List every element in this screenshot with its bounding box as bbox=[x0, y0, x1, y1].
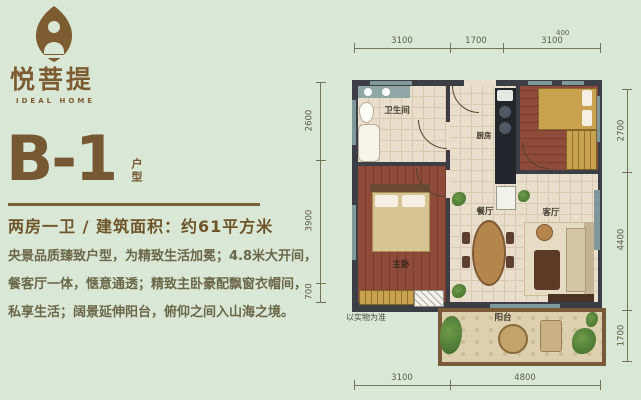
dim-tick bbox=[316, 82, 326, 83]
pillow-icon bbox=[582, 90, 592, 106]
balcony-label: 阳台 bbox=[486, 311, 520, 323]
living-window-right bbox=[594, 190, 600, 250]
unit-type-code: B-1 bbox=[6, 128, 116, 190]
master-bedroom-label: 主卧 bbox=[386, 258, 416, 270]
dim-left-1: 2600 bbox=[305, 101, 316, 141]
chair-icon bbox=[506, 232, 514, 244]
dim-left-2: 3900 bbox=[305, 201, 316, 241]
dim-right-2: 4400 bbox=[617, 220, 628, 260]
bathroom-window-left bbox=[352, 100, 356, 145]
dim-tick bbox=[316, 160, 326, 161]
dim-line-top bbox=[354, 48, 600, 49]
lounge-chair-icon bbox=[540, 320, 562, 352]
coffee-table-icon bbox=[534, 250, 560, 290]
tv-cabinet-icon bbox=[548, 294, 594, 302]
pillow-icon bbox=[582, 110, 592, 126]
dim-bottom-2: 4800 bbox=[490, 373, 560, 383]
dim-tick bbox=[600, 380, 601, 390]
dim-tick bbox=[503, 43, 504, 53]
wardrobe-icon bbox=[566, 130, 597, 170]
description-line-2: 餐客厅一体，惬意通透；精致主卧豪配飘窗衣帽间， bbox=[8, 271, 344, 299]
sink-icon bbox=[382, 88, 390, 96]
chair-icon bbox=[506, 256, 514, 268]
dim-top-3: 3100 bbox=[522, 36, 582, 46]
chair-icon bbox=[462, 256, 470, 268]
description-line-1: 央景品质臻致户型，为精致生活加冕；4.8米大开间， bbox=[8, 243, 344, 271]
logo-tagline: IDEAL HOME bbox=[16, 97, 95, 105]
dim-tick bbox=[354, 380, 355, 390]
dining-table-icon bbox=[472, 220, 506, 286]
dim-top-2: 1700 bbox=[451, 36, 501, 46]
dim-left-3: 700 bbox=[305, 272, 316, 312]
dim-line-left bbox=[320, 82, 321, 302]
dim-right-3: 1700 bbox=[617, 316, 628, 356]
logo-name: 悦菩提 bbox=[10, 60, 140, 96]
dim-line-bottom bbox=[354, 385, 600, 386]
dim-top-note: 400 bbox=[556, 29, 569, 37]
bathroom-label: 卫生间 bbox=[372, 104, 422, 116]
master-window-left bbox=[352, 205, 356, 260]
living-label: 客厅 bbox=[534, 206, 568, 218]
description-line-3: 私享生活；阔景延伸阳台，俯仰之间入山海之境。 bbox=[8, 299, 344, 327]
dining-label: 餐厅 bbox=[468, 205, 502, 217]
dim-tick bbox=[450, 380, 451, 390]
dim-tick bbox=[622, 89, 632, 90]
side-table-icon bbox=[536, 224, 553, 241]
divider-rule bbox=[8, 203, 260, 206]
bedroom2-window-top-1 bbox=[528, 81, 552, 85]
patio-table-icon bbox=[498, 324, 528, 354]
master-wardrobe-icon bbox=[359, 290, 415, 305]
dim-tick bbox=[316, 283, 326, 284]
dim-bottom-1: 3100 bbox=[372, 373, 432, 383]
flyer-page: 悦菩提 IDEAL HOME B-1 户型 两房一卫 / 建筑面积：约61平方米… bbox=[0, 0, 641, 400]
bathtub-icon bbox=[358, 124, 380, 162]
dim-tick bbox=[600, 43, 601, 53]
unit-spec-line: 两房一卫 / 建筑面积：约61平方米 bbox=[8, 213, 338, 237]
bathroom-window bbox=[370, 81, 412, 85]
dim-tick bbox=[622, 172, 632, 173]
dim-tick bbox=[622, 310, 632, 311]
pillow-icon bbox=[375, 195, 398, 207]
kitchen-label: 厨房 bbox=[466, 130, 502, 141]
buddha-leaf-logo-icon bbox=[22, 5, 86, 63]
dim-tick bbox=[316, 302, 326, 303]
dim-tick bbox=[354, 43, 355, 53]
stove-burner-icon bbox=[499, 106, 511, 118]
dim-top-1: 3100 bbox=[372, 36, 432, 46]
pillow-icon bbox=[402, 195, 425, 207]
sink-icon bbox=[364, 88, 372, 96]
kitchen-sink-icon bbox=[497, 90, 513, 101]
master-door-opening bbox=[446, 170, 450, 198]
bedroom2-window-top-2 bbox=[562, 81, 584, 85]
dim-right-1: 2700 bbox=[617, 111, 628, 151]
chair-icon bbox=[462, 232, 470, 244]
unit-type-suffix: 户型 bbox=[128, 158, 144, 184]
sofa-seat-icon bbox=[566, 228, 586, 292]
dim-tick bbox=[622, 361, 632, 362]
ac-platform bbox=[414, 290, 444, 307]
disclaimer-note: 以实物为准 bbox=[346, 312, 386, 323]
marketing-description: 央景品质臻致户型，为精致生活加冕；4.8米大开间， 餐客厅一体，惬意通透；精致主… bbox=[8, 243, 344, 327]
